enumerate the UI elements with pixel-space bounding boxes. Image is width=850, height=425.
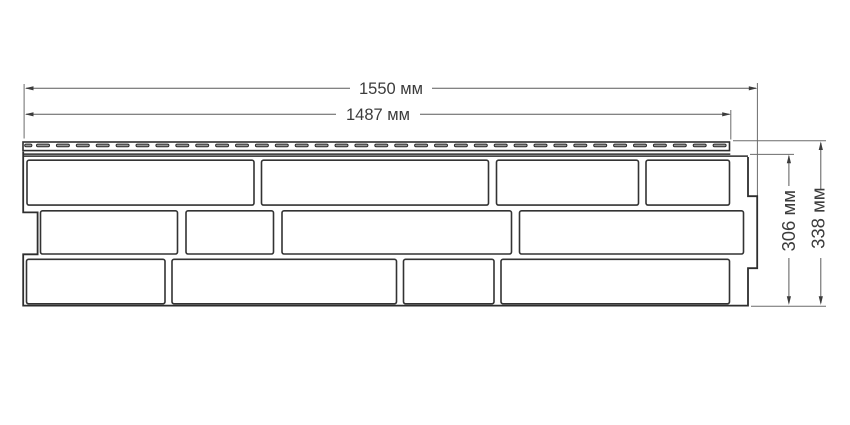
svg-text:1487 мм: 1487 мм xyxy=(346,106,410,124)
svg-text:338 мм: 338 мм xyxy=(807,187,828,248)
svg-text:1550 мм: 1550 мм xyxy=(359,80,423,98)
svg-text:306 мм: 306 мм xyxy=(778,190,799,251)
